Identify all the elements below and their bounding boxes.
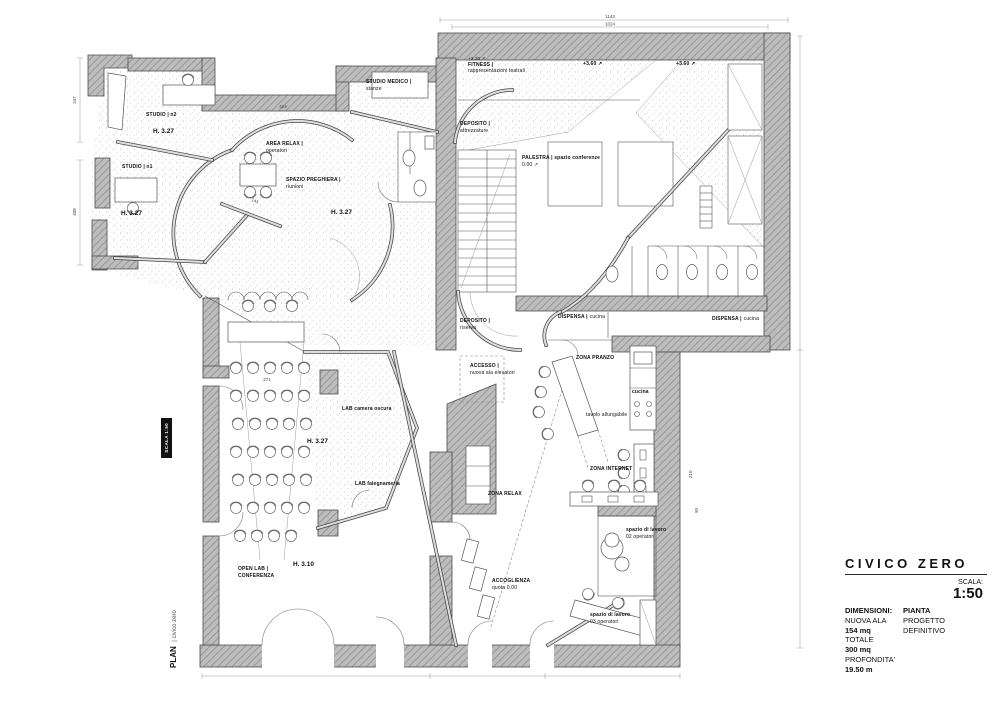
- room-label-spazio-preghiera: SPAZIO PREGHIERA |riunioni: [286, 177, 341, 190]
- scale-value: 1:50: [845, 586, 983, 601]
- tb-line: PROFONDITA': [845, 655, 895, 665]
- room-label-zona-internet: ZONA INTERNET: [590, 466, 632, 473]
- title-columns: DIMENSIONI: NUOVA ALA 154 mq TOTALE 300 …: [845, 606, 987, 674]
- dim-seats: 271: [263, 377, 271, 382]
- furniture-label-tavolo: tavolo allungabile: [586, 412, 627, 419]
- room-label-accoglienza: ACCOGLIENZAquota 0.00: [492, 578, 530, 591]
- room-label-dispensa-b: DISPENSA |cucina: [712, 316, 759, 323]
- furniture-label-cucina: cucina: [632, 389, 649, 396]
- bathrooms: [606, 246, 764, 298]
- room-label-deposito-riserva: DEPOSITO |riserva: [460, 318, 490, 331]
- height-label: H. 3.27: [307, 438, 328, 445]
- tb-line: DIMENSIONI:: [845, 606, 895, 616]
- dim-left-upper: 247: [72, 96, 77, 104]
- project-title: CIVICO ZERO: [845, 556, 987, 571]
- room-label-palestra: PALESTRA | spazio conferenze0.00 ↗: [522, 155, 600, 168]
- open-lab-seating: [228, 292, 312, 560]
- sheet-name-vertical: PLAN | civico zero: [163, 593, 181, 668]
- room-label-zona-relax: ZONA RELAX: [488, 491, 522, 498]
- room-label-zona-pranzo: ZONA PRANZO: [576, 355, 614, 362]
- tb-line: 19.50 m: [845, 665, 895, 675]
- dim-relax-width: 424: [279, 104, 287, 109]
- room-label-lab-falegnameria: LAB falegnameria: [355, 481, 400, 488]
- room-label-spazio-lavoro-02: spazio di lavoro02 operatori: [626, 527, 666, 540]
- dim-210: 210: [688, 470, 693, 478]
- dim-90: 90: [694, 507, 699, 513]
- project-column: PIANTA PROGETTO DEFINITIVO: [903, 606, 945, 674]
- scale-block: SCALA: 1:50: [845, 579, 987, 601]
- tb-line: PROGETTO: [903, 616, 945, 626]
- title-rule: [845, 574, 987, 575]
- room-label-deposito-attrezzature: DEPOSITO |attrezzature: [460, 121, 490, 134]
- tb-line: TOTALE: [845, 635, 895, 645]
- quota-label: +3.60 ↗: [676, 61, 695, 68]
- room-label-studio-n2: STUDIO | n2: [146, 112, 177, 119]
- floor-plan-drawing: 1143 1024 247 408 424 141 271 210 90: [0, 0, 992, 702]
- floor-plan-sheet: 1143 1024 247 408 424 141 271 210 90 STU…: [0, 0, 992, 702]
- quota-label: +3.60 ↗: [583, 61, 602, 68]
- tb-line: 300 mq: [845, 645, 895, 655]
- room-label-dispensa-a: DISPENSA |cucina: [558, 314, 605, 321]
- room-label-accesso: ACCESSO |nuova ala elevatori: [470, 363, 515, 376]
- height-label: H. 3.27: [121, 210, 142, 217]
- title-block: CIVICO ZERO SCALA: 1:50 DIMENSIONI: NUOV…: [845, 556, 987, 674]
- dim-top-inner: 1024: [605, 22, 616, 27]
- dim-left-lower: 408: [72, 208, 77, 216]
- room-label-area-relax: AREA RELAX |operatori: [266, 141, 303, 154]
- dim-top-outer: 1143: [605, 14, 615, 19]
- dimensions-column: DIMENSIONI: NUOVA ALA 154 mq TOTALE 300 …: [845, 606, 895, 674]
- tb-line: DEFINITIVO: [903, 626, 945, 636]
- room-label-fitness: +3.20 ↗FITNESS |rappresentazioni teatral…: [468, 56, 525, 75]
- scale-badge: SCALA 1:50: [161, 418, 172, 458]
- tb-line: NUOVA ALA: [845, 616, 895, 626]
- height-label: H. 3.10: [293, 561, 314, 568]
- room-label-studio-n1: STUDIO | n1: [122, 164, 153, 171]
- tb-line: 154 mq: [845, 626, 895, 636]
- tb-line: PIANTA: [903, 606, 945, 616]
- room-label-open-lab: OPEN LAB |CONFERENZA: [238, 566, 274, 579]
- room-label-studio-medico: STUDIO MEDICO |stanze: [366, 79, 411, 92]
- room-label-spazio-lavoro-03: spazio di lavoro03 operatori: [590, 612, 630, 625]
- height-label: H. 3.27: [331, 209, 352, 216]
- height-label: H. 3.27: [153, 128, 174, 135]
- room-label-lab-camera-oscura: LAB camera oscura: [342, 406, 392, 413]
